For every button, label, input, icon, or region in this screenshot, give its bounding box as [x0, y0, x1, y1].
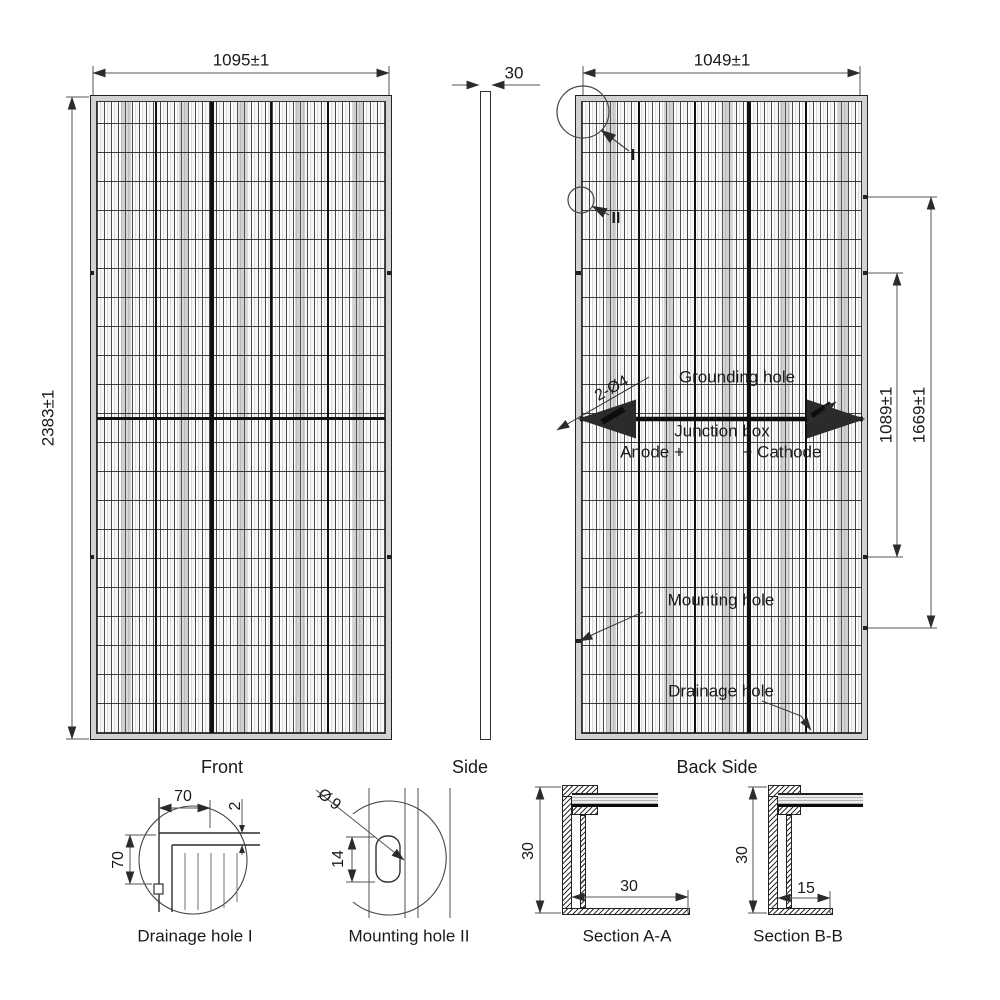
detail-marker-ii: II	[612, 211, 621, 227]
grounding-hole-label: Grounding hole	[679, 369, 795, 386]
mounting-diameter-dim: Ø9	[314, 786, 345, 815]
mounting-detail-caption: Mounting hole II	[349, 928, 470, 945]
frame-outer-wall	[562, 785, 572, 915]
half-cell-gap-line	[97, 417, 385, 420]
cell-column-divider	[638, 102, 640, 733]
back-width-dim: 1049±1	[694, 52, 751, 69]
anode-label: Anode +	[620, 444, 684, 461]
detail-marker-i: I	[631, 148, 635, 164]
back-cell-grid	[581, 101, 862, 734]
section-bb-caption: Section B-B	[753, 928, 843, 945]
side-view-profile	[480, 91, 491, 740]
section-bb-flange-dim: 15	[795, 881, 817, 897]
drainage-width-dim: 70	[174, 789, 192, 805]
section-aa-height-dim: 30	[521, 842, 537, 860]
section-bb-height-dim: 30	[735, 846, 751, 864]
section-aa-caption: Section A-A	[583, 928, 672, 945]
frame-inner-wall	[580, 815, 586, 908]
frame-bottom-flange	[768, 908, 833, 915]
front-cell-grid	[96, 101, 386, 734]
frame-outer-wall	[768, 785, 778, 915]
section-bb-drawing	[768, 785, 868, 915]
back-mount-span-dim: 1089±1	[878, 387, 895, 444]
mounting-slot-dim: 14	[331, 850, 347, 868]
cell-column-divider-center	[747, 102, 751, 733]
section-aa-flange-dim: 30	[618, 879, 640, 895]
back-view-panel	[575, 95, 868, 740]
drainage-detail-caption: Drainage hole I	[137, 928, 252, 945]
cell-column-divider	[805, 102, 807, 733]
side-view-caption: Side	[452, 758, 488, 776]
front-height-dim: 2383±1	[40, 390, 57, 447]
back-mount-outer-dim: 1669±1	[911, 387, 928, 444]
frame-bottom-flange	[562, 908, 690, 915]
frame-inner-wall	[786, 815, 792, 908]
front-width-dim: 1095±1	[213, 52, 270, 69]
glass-laminate	[778, 793, 863, 807]
drainage-gap-dim: 2	[228, 802, 244, 811]
glass-laminate	[572, 793, 658, 807]
cathode-label: + Cathode	[743, 444, 822, 461]
section-aa-drawing	[562, 785, 692, 915]
drainage-height-dim: 70	[111, 851, 127, 869]
cell-column-divider	[694, 102, 696, 733]
mounting-hole-label: Mounting hole	[668, 592, 775, 609]
back-view-caption: Back Side	[676, 758, 757, 776]
drainage-hole-detail	[125, 798, 260, 914]
junction-box-label: Junction box	[674, 423, 769, 440]
front-view-panel	[90, 95, 392, 740]
front-view-caption: Front	[201, 758, 243, 776]
side-thickness-dim: 30	[505, 65, 524, 82]
back-top-dimension	[583, 66, 860, 95]
drainage-hole-label: Drainage hole	[668, 683, 774, 700]
